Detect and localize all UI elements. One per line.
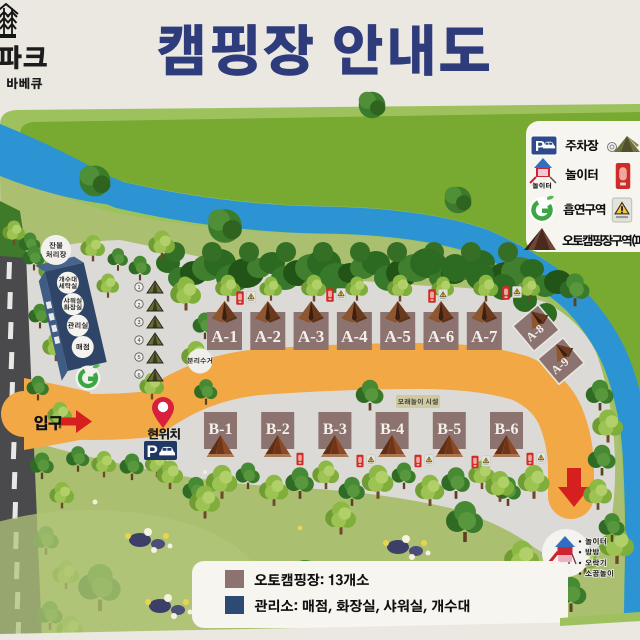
svg-text:A-7: A-7 [471,327,498,346]
svg-text:4: 4 [137,338,140,344]
svg-text:5: 5 [137,355,140,361]
svg-text:A-6: A-6 [428,327,454,346]
svg-text:A-4: A-4 [341,327,368,346]
svg-text:A-2: A-2 [255,327,281,346]
svg-text:A-3: A-3 [298,327,324,346]
svg-text:2: 2 [137,303,140,309]
svg-text:P: P [147,442,158,461]
svg-text:6: 6 [137,373,140,379]
svg-text:A-5: A-5 [384,327,410,346]
svg-text:A-1: A-1 [211,327,237,346]
svg-text:3: 3 [137,320,140,326]
svg-text:1: 1 [137,285,140,291]
